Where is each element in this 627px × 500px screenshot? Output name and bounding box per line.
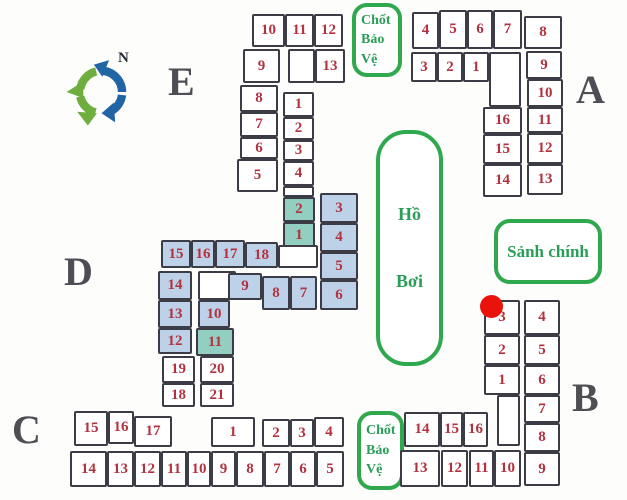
unit-A-10: 10 xyxy=(527,79,563,107)
unit-D-5: 5 xyxy=(320,252,358,280)
unit-A-9: 9 xyxy=(526,51,562,79)
unit-A-11: 11 xyxy=(527,107,563,133)
unit-A-5: 5 xyxy=(439,10,467,49)
unit-D-2: 2 xyxy=(283,197,315,222)
unit-C-5: 5 xyxy=(316,451,344,487)
unit-A-7: 7 xyxy=(493,10,522,49)
unit-C-8: 8 xyxy=(236,451,264,487)
unit-B-8: 8 xyxy=(524,423,560,452)
unit-D-13: 13 xyxy=(158,300,192,328)
guard-post-bottom-line: Bảo xyxy=(366,441,389,461)
unit-C-14: 14 xyxy=(70,451,107,487)
unit-C-4: 4 xyxy=(314,417,344,447)
unit-D-unlabeled xyxy=(278,245,318,268)
compass-north-label: N xyxy=(118,50,129,67)
unit-D-7: 7 xyxy=(290,276,317,310)
unit-B-7: 7 xyxy=(524,395,560,423)
unit-A-12: 12 xyxy=(527,133,563,164)
guard-post-bottom-line: Chốt xyxy=(366,421,396,441)
unit-D-18: 18 xyxy=(245,242,278,268)
unit-D-9: 9 xyxy=(228,273,262,300)
main-lobby-label: Sảnh chính xyxy=(507,242,589,262)
unit-C-16: 16 xyxy=(108,411,134,444)
unit-E-2: 2 xyxy=(283,117,314,140)
unit-A-13: 13 xyxy=(527,164,563,195)
unit-D-18: 18 xyxy=(162,383,195,407)
main-lobby: Sảnh chính xyxy=(494,219,602,284)
unit-B-15: 15 xyxy=(440,412,463,447)
guard-post-top-line: Chốt xyxy=(361,11,391,31)
unit-C-2: 2 xyxy=(262,419,290,447)
unit-A-15: 15 xyxy=(483,134,522,164)
unit-D-15: 15 xyxy=(161,240,191,268)
unit-E-10: 10 xyxy=(252,14,285,47)
section-label-D: D xyxy=(64,252,93,292)
unit-D-10: 10 xyxy=(198,300,230,328)
unit-B-9: 9 xyxy=(524,452,560,486)
pool-label-line: Hồ xyxy=(398,204,421,225)
unit-D-19: 19 xyxy=(162,356,195,383)
unit-E-unlabeled xyxy=(283,186,314,197)
unit-E-9: 9 xyxy=(243,49,280,83)
unit-E-8: 8 xyxy=(240,85,278,112)
guard-post-bottom: Chốt Bảo Vệ xyxy=(357,411,404,490)
unit-A-8: 8 xyxy=(524,16,562,49)
unit-D-6: 6 xyxy=(320,280,358,310)
unit-E-12: 12 xyxy=(314,14,343,47)
unit-B-4: 4 xyxy=(524,300,560,335)
unit-D-3: 3 xyxy=(320,193,358,223)
unit-C-17: 17 xyxy=(134,416,172,447)
unit-E-4: 4 xyxy=(283,161,314,186)
section-label-B: B xyxy=(572,378,599,418)
unit-E-unlabeled xyxy=(288,49,315,83)
unit-B-12: 12 xyxy=(441,450,468,487)
location-marker-dot xyxy=(480,295,503,318)
unit-D-11: 11 xyxy=(196,328,234,356)
guard-post-top-line: Bảo xyxy=(361,30,384,50)
guard-post-top: Chốt Bảo Vệ xyxy=(352,3,402,77)
pool-label-line: Bơi xyxy=(396,271,423,292)
unit-C-15: 15 xyxy=(74,411,108,446)
unit-A-4: 4 xyxy=(412,12,439,49)
unit-B-13: 13 xyxy=(400,450,440,487)
unit-C-3: 3 xyxy=(290,419,314,447)
unit-B-1: 1 xyxy=(484,365,520,395)
unit-E-6: 6 xyxy=(240,137,278,159)
unit-B-16: 16 xyxy=(463,412,488,447)
guard-post-bottom-line: Vệ xyxy=(366,460,382,480)
unit-D-17: 17 xyxy=(215,240,245,268)
unit-B-5: 5 xyxy=(524,335,560,365)
unit-C-10: 10 xyxy=(187,451,211,487)
unit-E-1: 1 xyxy=(283,92,314,117)
unit-A-6: 6 xyxy=(467,10,493,49)
unit-C-6: 6 xyxy=(290,451,316,487)
unit-E-3: 3 xyxy=(283,140,314,161)
unit-A-unlabeled xyxy=(489,52,521,107)
section-label-E: E xyxy=(168,62,195,102)
unit-C-7: 7 xyxy=(264,451,290,487)
unit-A-16: 16 xyxy=(483,107,522,134)
unit-B-unlabeled xyxy=(497,395,520,446)
unit-E-13: 13 xyxy=(315,49,345,83)
unit-A-14: 14 xyxy=(483,164,522,197)
unit-C-1: 1 xyxy=(211,417,255,447)
unit-E-7: 7 xyxy=(240,112,278,137)
unit-C-9: 9 xyxy=(211,451,236,487)
unit-B-14: 14 xyxy=(404,412,440,447)
unit-C-13: 13 xyxy=(107,451,134,487)
unit-D-4: 4 xyxy=(320,223,358,252)
unit-A-1: 1 xyxy=(463,52,489,82)
unit-E-11: 11 xyxy=(285,14,314,47)
unit-B-11: 11 xyxy=(469,450,494,487)
section-label-A: A xyxy=(576,70,605,110)
guard-post-top-line: Vệ xyxy=(361,50,377,70)
compass: N xyxy=(62,50,154,130)
unit-D-20: 20 xyxy=(200,356,234,383)
unit-D-12: 12 xyxy=(158,328,192,354)
section-label-C: C xyxy=(12,410,41,450)
unit-A-2: 2 xyxy=(437,52,463,82)
unit-C-12: 12 xyxy=(134,451,161,487)
swimming-pool: Hồ Bơi xyxy=(376,130,443,366)
unit-D-16: 16 xyxy=(191,240,215,268)
unit-B-2: 2 xyxy=(484,335,520,365)
unit-A-3: 3 xyxy=(411,52,437,82)
unit-D-21: 21 xyxy=(200,383,234,407)
unit-D-8: 8 xyxy=(262,276,290,310)
unit-B-10: 10 xyxy=(494,450,521,487)
unit-B-6: 6 xyxy=(524,365,560,395)
unit-D-14: 14 xyxy=(158,271,192,300)
unit-E-5: 5 xyxy=(237,159,278,192)
site-plan-map: N Chốt Bảo Vệ Chốt Bảo Vệ Hồ Bơi Sảnh ch… xyxy=(0,0,627,500)
unit-C-11: 11 xyxy=(161,451,187,487)
